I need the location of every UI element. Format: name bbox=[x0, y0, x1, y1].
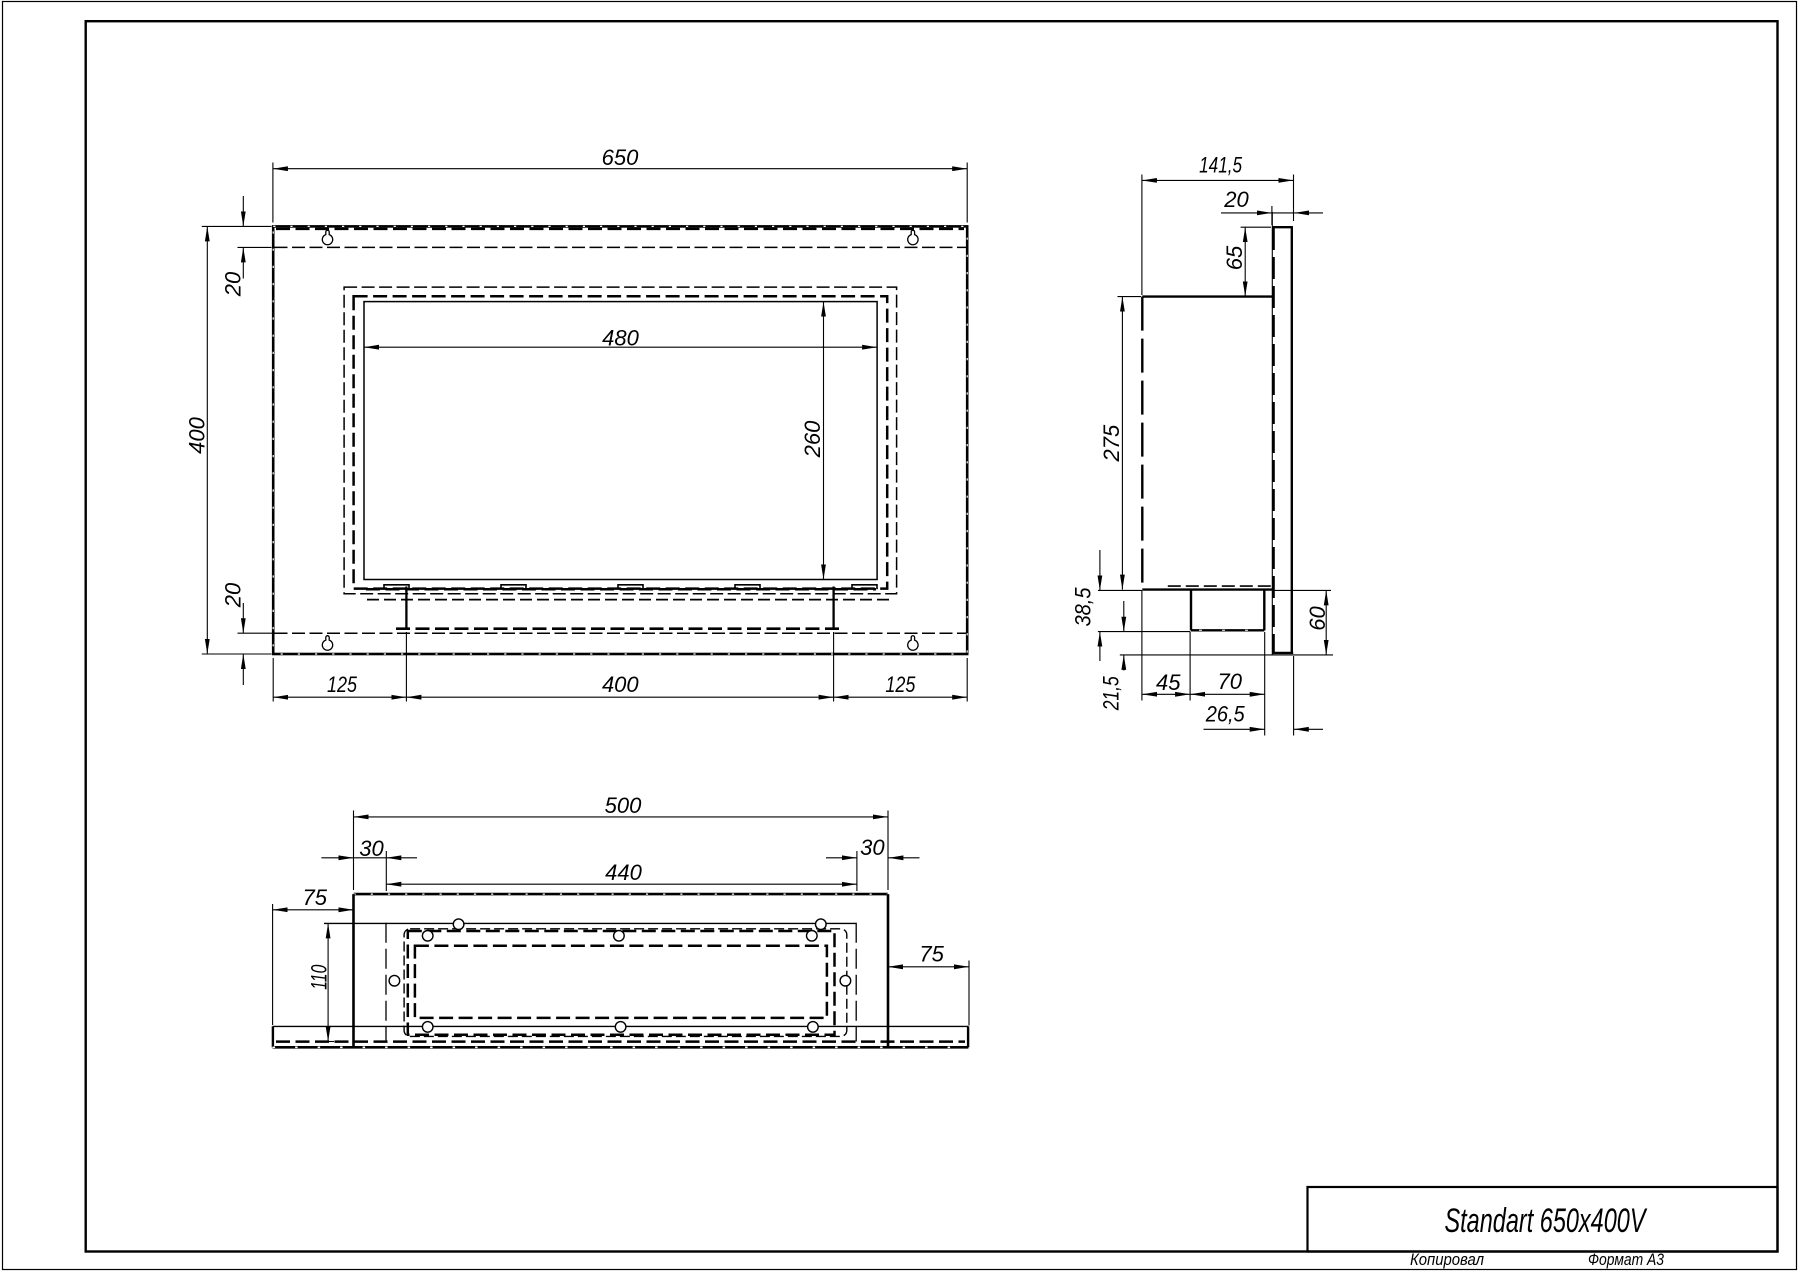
svg-text:480: 480 bbox=[602, 326, 639, 351]
svg-text:30: 30 bbox=[860, 835, 885, 860]
svg-text:75: 75 bbox=[302, 885, 327, 910]
svg-text:125: 125 bbox=[327, 672, 358, 697]
svg-text:20: 20 bbox=[220, 582, 245, 608]
svg-text:125: 125 bbox=[885, 672, 916, 697]
svg-text:141,5: 141,5 bbox=[1199, 153, 1243, 178]
svg-text:26,5: 26,5 bbox=[1205, 701, 1246, 726]
svg-text:110: 110 bbox=[307, 964, 332, 990]
svg-text:Копировал: Копировал bbox=[1410, 1250, 1484, 1269]
svg-text:70: 70 bbox=[1217, 669, 1242, 694]
svg-text:650: 650 bbox=[602, 145, 639, 170]
svg-text:30: 30 bbox=[359, 836, 384, 861]
svg-text:400: 400 bbox=[184, 416, 209, 453]
svg-text:260: 260 bbox=[800, 420, 825, 458]
svg-text:Формат А3: Формат А3 bbox=[1588, 1250, 1664, 1269]
svg-text:500: 500 bbox=[605, 793, 642, 818]
svg-text:75: 75 bbox=[919, 941, 944, 966]
svg-text:275: 275 bbox=[1099, 424, 1124, 462]
svg-text:440: 440 bbox=[605, 860, 642, 885]
svg-text:20: 20 bbox=[220, 271, 245, 297]
svg-text:20: 20 bbox=[1223, 187, 1249, 212]
svg-text:60: 60 bbox=[1305, 606, 1330, 631]
svg-text:45: 45 bbox=[1156, 670, 1181, 695]
svg-text:Standart 650x400V: Standart 650x400V bbox=[1445, 1202, 1648, 1240]
svg-text:38,5: 38,5 bbox=[1071, 587, 1096, 627]
svg-text:400: 400 bbox=[602, 672, 639, 697]
svg-text:65: 65 bbox=[1222, 245, 1247, 270]
svg-text:21,5: 21,5 bbox=[1099, 676, 1124, 711]
